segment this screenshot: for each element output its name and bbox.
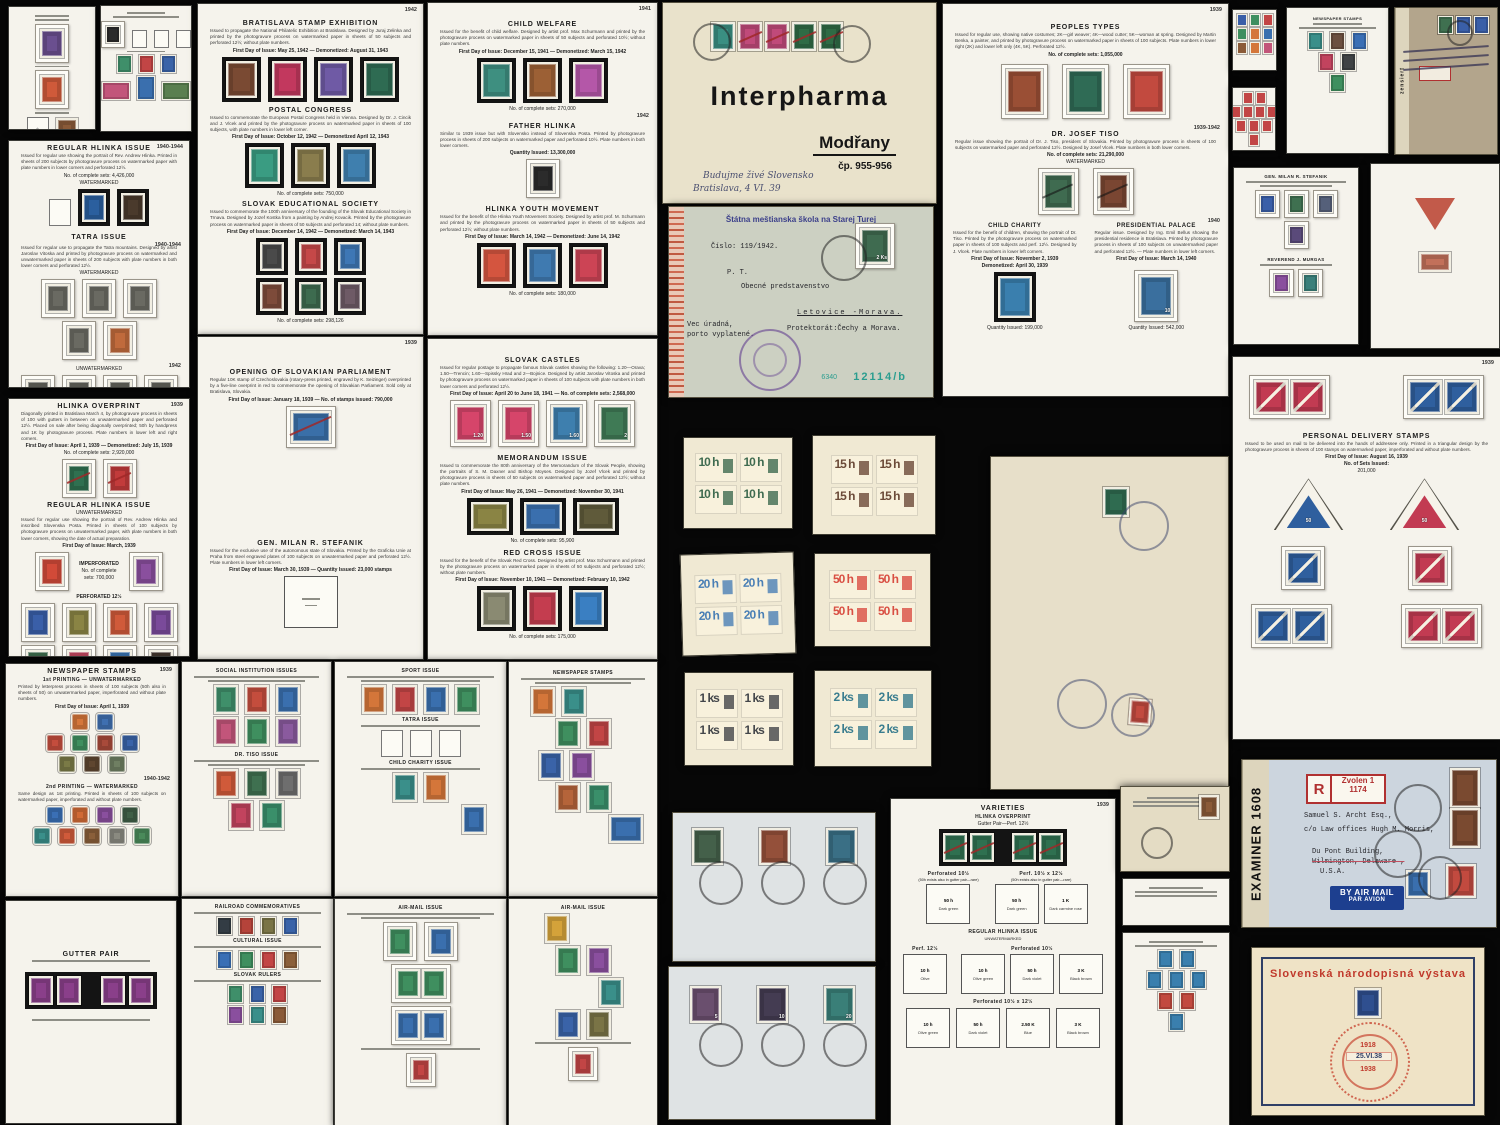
stamp-block: 1 ks1 ks1 ks1 ks bbox=[696, 689, 783, 750]
stamp bbox=[214, 769, 238, 798]
text-lines bbox=[509, 1042, 657, 1044]
text-lines bbox=[182, 760, 331, 766]
airmail-label-en: BY AIR MAIL bbox=[1330, 888, 1404, 897]
postmark-zvolen bbox=[1374, 830, 1422, 878]
stamp bbox=[1319, 53, 1334, 71]
stamp bbox=[1450, 808, 1480, 848]
album-page-bratislava-exhibition: 1942 BRATISLAVA STAMP EXHIBITION Issued … bbox=[197, 3, 424, 335]
stamp-row bbox=[335, 1053, 506, 1087]
stamp bbox=[738, 22, 762, 51]
stamp bbox=[117, 55, 132, 73]
sets-count: No. of complete sets: 180,000 bbox=[428, 291, 657, 297]
stamp-row bbox=[1450, 808, 1480, 848]
stamp-mount bbox=[1313, 190, 1338, 218]
stamp-row bbox=[182, 801, 331, 830]
block-2ks: 2 ks2 ks2 ks2 ks bbox=[814, 670, 932, 767]
censor-tape: zensiert bbox=[1395, 8, 1409, 154]
demonetized-line: Demonetized: April 30, 1939 bbox=[953, 263, 1077, 269]
postmark bbox=[1141, 827, 1173, 859]
stamp-mount bbox=[62, 459, 96, 498]
stamp: 50 h bbox=[829, 602, 871, 631]
page-year: 1940-1944 bbox=[157, 144, 183, 150]
stamp bbox=[527, 590, 558, 627]
card-ethnographic-exhibition: Slovenská národopisná výstava 1918 25.VI… bbox=[1251, 947, 1485, 1116]
stamp bbox=[82, 193, 106, 222]
stamp bbox=[562, 687, 586, 716]
stamp: 50 bbox=[1403, 495, 1447, 528]
variety-label: Gutter Pair—Perf. 12½ bbox=[891, 821, 1115, 827]
stamp: 15 h bbox=[831, 487, 873, 516]
perf-label: Perf. 10½ x 12½ bbox=[997, 871, 1086, 877]
stamp-row bbox=[711, 22, 843, 51]
stamp-mount bbox=[1001, 64, 1048, 119]
stamp-mount bbox=[467, 498, 513, 535]
postmark bbox=[1111, 693, 1155, 737]
stamp bbox=[108, 650, 132, 657]
stamp-mount bbox=[1251, 604, 1332, 648]
stamp bbox=[1413, 551, 1447, 585]
stamp: 10 bbox=[1139, 275, 1173, 317]
stamp-mount bbox=[383, 922, 417, 961]
stamp: 15 h bbox=[831, 455, 873, 484]
section-description: Issued for regular use showing the portr… bbox=[21, 153, 177, 172]
stamp-mount: 1.60 bbox=[546, 400, 587, 447]
block-50h: 50 h50 h50 h50 h bbox=[814, 553, 931, 647]
stamp: 10 h bbox=[740, 453, 782, 482]
page-year: 1942 bbox=[428, 113, 649, 119]
postmark bbox=[823, 1023, 867, 1067]
section-description: Regular issue. Designed by Ing. Emil Bel… bbox=[1095, 230, 1219, 255]
stamp bbox=[217, 917, 232, 935]
stamp: 20 bbox=[824, 986, 855, 1023]
stamp bbox=[1254, 380, 1288, 414]
registry-number-2: 6340 bbox=[821, 374, 837, 381]
section-description: Issued for the benefit of the Slovak Red… bbox=[440, 558, 645, 577]
stamp bbox=[422, 969, 446, 998]
stamp-mount bbox=[103, 603, 137, 642]
service-note: porto vyplatené. bbox=[687, 331, 754, 339]
stamp bbox=[108, 755, 126, 773]
stamp bbox=[1263, 28, 1273, 40]
stamp-block: 20 h20 h20 h20 h bbox=[694, 572, 783, 635]
stamp-mount bbox=[144, 603, 178, 642]
section-description: Issued for regular postage to propagate … bbox=[440, 365, 645, 390]
stamp-row bbox=[335, 922, 506, 961]
gutter-strip bbox=[6, 972, 176, 1009]
album-fragment-small bbox=[1122, 878, 1230, 926]
stamp bbox=[1250, 28, 1260, 40]
stamp-mount bbox=[245, 143, 284, 188]
presidential-palace-column: PRESIDENTIAL PALACE Regular issue. Desig… bbox=[1091, 220, 1223, 332]
empty-stamp-box: + bbox=[27, 117, 49, 130]
section-description: Issued to commemorate the 80th anniversa… bbox=[440, 463, 645, 488]
stamp bbox=[826, 828, 857, 865]
address-line: Obecné predstavenstvo bbox=[741, 283, 829, 291]
stamp bbox=[692, 828, 723, 865]
text-lines bbox=[335, 913, 506, 919]
section-title: POSTAL CONGRESS bbox=[200, 107, 421, 114]
postmark bbox=[1057, 679, 1107, 729]
varieties-row-2: Perf. 12½ 10 hOlive Perforated 10½ 10 hO… bbox=[891, 944, 1115, 996]
empty-stamp-box bbox=[132, 30, 147, 48]
variety-box: 10 hOlive bbox=[903, 954, 947, 994]
postmark bbox=[1447, 20, 1473, 46]
stamp bbox=[362, 685, 386, 714]
album-page-airmail-2: AIR-MAIL ISSUE bbox=[508, 898, 658, 1125]
stamp-row: + bbox=[9, 117, 95, 130]
stamp-row bbox=[1450, 768, 1480, 808]
stamp-row bbox=[9, 321, 189, 360]
stamp-row bbox=[1123, 992, 1229, 1010]
stamp bbox=[1237, 42, 1247, 54]
stamp-row bbox=[1234, 269, 1358, 297]
address-line: U.S.A. bbox=[1320, 868, 1345, 876]
registry-number: 12114/b bbox=[853, 371, 907, 383]
album-page-social-tiso: SOCIAL INSTITUTION ISSUES DR. TISO ISSUE bbox=[181, 661, 332, 897]
stamp-mount bbox=[256, 238, 288, 275]
stamp: 10 h bbox=[695, 485, 737, 514]
stamp-mount bbox=[1281, 546, 1325, 590]
watermark-label: UNWATERMARKED bbox=[9, 510, 189, 516]
page-year: 1939 bbox=[1210, 7, 1222, 13]
vbox-row: 50 hDark green bbox=[918, 884, 978, 924]
stamp bbox=[250, 985, 265, 1003]
quantity-issued: Quantity Issued: 13,300,000 bbox=[428, 150, 657, 156]
stamp bbox=[1067, 69, 1104, 114]
section-description: Issued to commemorate the 100th annivers… bbox=[210, 209, 411, 228]
text-lines bbox=[1123, 887, 1229, 897]
stamp-block: 15 h15 h15 h15 h bbox=[831, 455, 918, 516]
stamp-row bbox=[428, 243, 657, 288]
section-description: Issued for regular use showing the portr… bbox=[21, 517, 177, 542]
stamp-row bbox=[943, 168, 1228, 215]
stamp-mount bbox=[21, 645, 55, 657]
stamp-mount bbox=[25, 972, 157, 1009]
stamp bbox=[424, 685, 448, 714]
stamp: 1 ks bbox=[696, 689, 738, 718]
stamp-mount bbox=[573, 498, 619, 535]
stamp-row bbox=[335, 685, 506, 714]
section-description: Printed by letterpress process in sheets… bbox=[18, 684, 166, 703]
variety-box: 50 hDark green bbox=[995, 884, 1039, 924]
stamp bbox=[46, 806, 64, 824]
album-page-gutter-pair: GUTTER PAIR bbox=[5, 900, 177, 1124]
stamp: 2 ks bbox=[875, 720, 917, 749]
stamp bbox=[587, 946, 611, 975]
stamp-row bbox=[1234, 221, 1358, 249]
stamp: 15 h bbox=[876, 487, 918, 516]
stamp bbox=[261, 951, 276, 969]
stamp bbox=[149, 650, 173, 657]
stamp-row bbox=[428, 586, 657, 631]
triangle-frame: 50 bbox=[1390, 478, 1460, 530]
stamp-row bbox=[1233, 106, 1275, 118]
album-page-sport-tatra-charity: SPORT ISSUE TATRA ISSUE CHILD CHARITY IS… bbox=[334, 661, 507, 897]
stamp-row bbox=[129, 552, 163, 591]
sets-count: No. of complete sets: 95,900 bbox=[428, 538, 657, 544]
stamp-mount bbox=[360, 57, 399, 102]
stamp bbox=[129, 976, 153, 1005]
gutter-strip bbox=[891, 829, 1115, 866]
block-20h: 20 h20 h20 h20 h bbox=[680, 552, 797, 657]
section-title: SLOVAK CASTLES bbox=[430, 357, 655, 364]
cover-interpharma: Interpharma Modřany čp. 955-956 Budujme … bbox=[662, 2, 937, 204]
stamp bbox=[239, 917, 254, 935]
cover-fdc-airmail-1 bbox=[672, 812, 876, 962]
section-title: NEWSPAPER STAMPS bbox=[511, 670, 655, 676]
postmark bbox=[699, 861, 743, 905]
stamp-row bbox=[9, 279, 189, 318]
text-lines bbox=[6, 1019, 176, 1021]
stamp-row bbox=[509, 815, 657, 843]
stamp bbox=[133, 827, 151, 845]
section-title: HLINKA YOUTH MOVEMENT bbox=[430, 206, 655, 213]
stamp bbox=[1180, 992, 1195, 1010]
stamp bbox=[239, 951, 254, 969]
sets-count: No. of complete sets: 298,126 bbox=[198, 318, 423, 324]
stamp bbox=[67, 380, 91, 388]
stamp-row bbox=[198, 143, 423, 188]
stamp: 1 ks bbox=[696, 721, 738, 750]
stamp bbox=[570, 751, 594, 780]
stamp bbox=[1263, 14, 1273, 26]
stamp-mount bbox=[526, 159, 560, 198]
stamp-row bbox=[9, 645, 189, 657]
stamp bbox=[121, 806, 139, 824]
stamp: 10 h bbox=[740, 485, 782, 514]
text-lines bbox=[1234, 264, 1358, 266]
stamp bbox=[1191, 971, 1206, 989]
stamp-row bbox=[428, 498, 657, 535]
text-lines bbox=[101, 51, 191, 53]
stamp-row bbox=[9, 459, 189, 498]
block-10h: 10 h10 h10 h10 h bbox=[683, 437, 793, 529]
text-lines bbox=[509, 678, 657, 684]
stamp-row bbox=[182, 717, 331, 746]
stamp bbox=[283, 917, 298, 935]
stamp-row bbox=[1233, 134, 1275, 146]
stamp bbox=[1260, 195, 1275, 213]
sets-count: No. of complete sets: 21,290,000 bbox=[943, 152, 1228, 158]
section-title: PEOPLES TYPES bbox=[945, 24, 1226, 31]
address-line: Samuel S. Archt Esq., bbox=[1304, 812, 1392, 820]
stamp bbox=[149, 608, 173, 637]
stamp-mount bbox=[334, 238, 366, 275]
stamp bbox=[396, 1011, 420, 1040]
stamp-mount bbox=[391, 964, 451, 1003]
stamp-mount bbox=[1269, 269, 1294, 297]
variety-box: 50 hDark violet bbox=[956, 1008, 1000, 1048]
first-day-line: First Day of Issue: August 16, 1939 bbox=[1237, 454, 1496, 460]
stamp-row bbox=[182, 769, 331, 798]
stamp bbox=[524, 502, 562, 531]
stamp bbox=[1199, 795, 1219, 819]
variety-box: 1 KDark carmine rose bbox=[1044, 884, 1088, 924]
section-description: Regular issue showing the portrait of Dr… bbox=[955, 139, 1216, 151]
stamp-mount: 2 bbox=[594, 400, 635, 447]
airmail-label-fr: PAR AVION bbox=[1330, 897, 1404, 903]
stamp-mount bbox=[1284, 221, 1309, 249]
stamp bbox=[393, 773, 417, 802]
page-title: VARIETIES bbox=[893, 805, 1113, 812]
stamp bbox=[573, 62, 604, 99]
section-title: GUTTER PAIR bbox=[8, 951, 174, 958]
section-description: Issued for the benefit of the Hlinka You… bbox=[440, 214, 645, 233]
first-day-line: First Day of Issue: January 18, 1939 — N… bbox=[202, 397, 419, 403]
stamp bbox=[1262, 120, 1272, 132]
section-title: PRESIDENTIAL PALACE bbox=[1093, 223, 1221, 229]
section-description: Issued to commemorate the European Posta… bbox=[210, 115, 411, 134]
text-lines bbox=[101, 12, 191, 18]
variety-box: 10 hOlive green bbox=[961, 954, 1005, 994]
stamp: 20 h bbox=[695, 606, 738, 636]
album-page-parliament-stefanik: 1939 OPENING OF SLOVAKIAN PARLIAMENT Reg… bbox=[197, 336, 424, 660]
text-lines bbox=[335, 1048, 506, 1050]
stamp bbox=[276, 717, 300, 746]
variety-box: 3 KBlack brown bbox=[1059, 954, 1103, 994]
watermark-label: WATERMARKED bbox=[943, 159, 1228, 165]
stamp bbox=[40, 29, 64, 58]
variety-box: 3 KBlack brown bbox=[1056, 1008, 1100, 1048]
stamp bbox=[1243, 106, 1253, 118]
top-pairs bbox=[1233, 375, 1500, 419]
stamp: 50 h bbox=[829, 570, 871, 599]
stamp-mount bbox=[569, 243, 608, 288]
cover-praha-registered: zensiert bbox=[1394, 7, 1498, 155]
stamp bbox=[1408, 380, 1442, 414]
stamp bbox=[1243, 92, 1253, 104]
perf-group: Perf. 10½ x 12½ (50h exists also in gutt… bbox=[995, 869, 1088, 926]
page-year: 1942 bbox=[405, 7, 417, 13]
stamp-mount bbox=[1249, 375, 1330, 419]
section-title: NEWSPAPER STAMPS bbox=[1289, 16, 1386, 21]
stamp bbox=[424, 773, 448, 802]
stamp: 20 h bbox=[739, 572, 782, 602]
text-lines bbox=[9, 15, 95, 21]
stamp bbox=[527, 62, 558, 99]
cover-zvolen-registered: EXAMINER 1608 R Zvolen 1 1174 Samuel S. … bbox=[1241, 759, 1497, 928]
section-title: FATHER HLINKA bbox=[430, 123, 655, 130]
stamp: 2 ks bbox=[830, 688, 872, 717]
stamp-row bbox=[1123, 971, 1229, 989]
stamp-mount bbox=[62, 603, 96, 642]
stamp bbox=[1291, 380, 1325, 414]
section-description: Issued for the benefit of child welfare.… bbox=[440, 29, 645, 48]
album-page-stefanik-murgas: GEN. MILAN R. STEFANIK REVEREND J. MURGA… bbox=[1233, 167, 1359, 345]
stamp-row bbox=[101, 76, 191, 100]
stamp-row bbox=[509, 751, 657, 780]
stamp-mount bbox=[35, 24, 69, 63]
first-day-line: First Day of Issue: May 26, 1941 — Demon… bbox=[432, 489, 653, 495]
section-title: AIR-MAIL ISSUE bbox=[337, 905, 504, 911]
stamp bbox=[1147, 971, 1162, 989]
stamp bbox=[67, 650, 91, 657]
cachet-date: 25.VI.38 bbox=[1346, 1052, 1392, 1061]
block-15h: 15 h15 h15 h15 h bbox=[812, 435, 936, 535]
stamp bbox=[260, 282, 284, 311]
stamp-row bbox=[1371, 252, 1499, 272]
stamp bbox=[1355, 988, 1381, 1018]
stamp bbox=[245, 717, 269, 746]
censor-tape-examiner: EXAMINER 1608 bbox=[1242, 760, 1269, 927]
stamp-block: 2 ks2 ks2 ks2 ks bbox=[830, 688, 917, 749]
stamp bbox=[556, 946, 580, 975]
stamp bbox=[108, 380, 132, 388]
stamp-row bbox=[943, 64, 1228, 119]
stamp-mount bbox=[78, 189, 110, 226]
stamp-row bbox=[182, 985, 333, 1003]
album-page-railroad-cultural-rulers: RAILROAD COMMEMORATIVES CULTURAL ISSUE S… bbox=[181, 898, 334, 1125]
stamp bbox=[26, 650, 50, 657]
stamp-mount bbox=[62, 321, 96, 360]
registration-r: R bbox=[1308, 776, 1332, 802]
empty-stamp-box bbox=[284, 576, 338, 628]
stamp-mount bbox=[35, 552, 69, 591]
stamp bbox=[1289, 195, 1304, 213]
stamp: 1.60 bbox=[551, 405, 582, 442]
stamp-mount bbox=[286, 406, 336, 448]
imperforated-label: IMPERFORATED bbox=[79, 561, 119, 567]
cover-stara-tura: Štátna meštianska škola na Starej Turej … bbox=[668, 206, 934, 398]
stamp bbox=[139, 55, 154, 73]
stamp bbox=[108, 464, 132, 493]
imperforate-row: IMPERFORATED No. of complete sets: 700,0… bbox=[9, 552, 189, 591]
stamp bbox=[599, 978, 623, 1007]
stamp bbox=[149, 380, 173, 388]
stamp bbox=[128, 284, 152, 313]
stamp bbox=[1255, 106, 1265, 118]
stamp bbox=[943, 833, 967, 862]
album-page-varieties: 1939 VARIETIES HLINKA OVERPRINT Gutter P… bbox=[890, 798, 1116, 1125]
printing-label: 1st PRINTING — UNWATERMARKED bbox=[8, 677, 176, 683]
section-title: REGULAR HLINKA ISSUE bbox=[11, 502, 187, 509]
stamp bbox=[87, 284, 111, 313]
stamp-mount bbox=[477, 58, 516, 103]
handwriting-line bbox=[1403, 45, 1489, 53]
stamp-mount bbox=[268, 57, 307, 102]
stamp bbox=[67, 326, 91, 355]
watermark-label: WATERMARKED bbox=[9, 180, 189, 186]
stamp-mount bbox=[82, 279, 116, 318]
perf-label: Perforated 10½ x 12½ bbox=[893, 999, 1113, 1005]
stamp bbox=[481, 62, 512, 99]
stamp-mount bbox=[62, 645, 96, 657]
stamp bbox=[531, 687, 555, 716]
varieties-row-1: Perforated 10½ (50h exists also in gutte… bbox=[891, 869, 1115, 926]
stamp bbox=[46, 734, 64, 752]
sets-count: No. of complete sets: 270,000 bbox=[428, 106, 657, 112]
stamp bbox=[229, 801, 253, 830]
stamp bbox=[338, 242, 362, 271]
stamp bbox=[1293, 609, 1327, 643]
page-year: 1939 bbox=[160, 667, 172, 673]
stamp bbox=[1098, 173, 1129, 210]
stamp bbox=[272, 1006, 287, 1024]
stamp bbox=[261, 917, 276, 935]
address-line: P. T. bbox=[727, 269, 748, 277]
bottom-pairs bbox=[1233, 604, 1500, 648]
stamp bbox=[295, 147, 326, 184]
stamp bbox=[121, 734, 139, 752]
vbox-row: 10 hOlive green50 hDark violet2.50 KBlue… bbox=[891, 1008, 1115, 1048]
stamp bbox=[587, 1010, 611, 1039]
text-lines bbox=[1234, 181, 1358, 187]
album-page-newspaper-stamps: 1939 NEWSPAPER STAMPS 1st PRINTING — UNW… bbox=[5, 663, 179, 897]
first-day-line: First Day of Issue: May 25, 1942 — Demon… bbox=[202, 48, 419, 54]
sets-count: No. of complete sets: 2,920,000 bbox=[9, 450, 189, 456]
stamp-row bbox=[509, 687, 657, 716]
album-page-personal-delivery: 1939 PERSONAL DELIVERY STAMPS Issued to … bbox=[1232, 356, 1500, 740]
